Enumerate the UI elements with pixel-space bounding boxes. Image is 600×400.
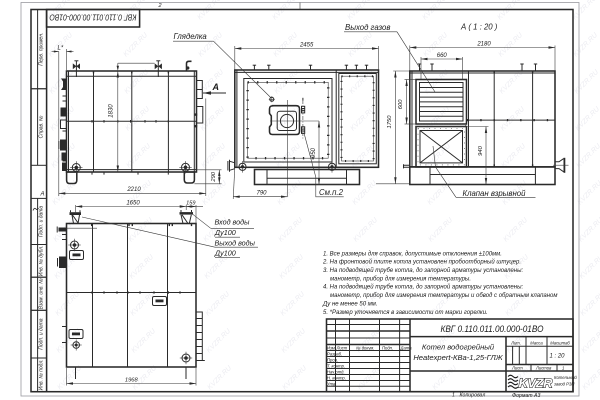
svg-text:КВГ 0.110.011.00.000-01ВО: КВГ 0.110.011.00.000-01ВО (441, 324, 544, 334)
svg-text:1650: 1650 (126, 201, 140, 207)
svg-text:290: 290 (211, 171, 217, 182)
svg-text:2210: 2210 (126, 187, 141, 193)
svg-text:Heatexpert-КВа-1,25-ГЛЖ: Heatexpert-КВа-1,25-ГЛЖ (413, 353, 503, 362)
svg-text:2455: 2455 (299, 42, 314, 48)
svg-text:Подп.: Подп. (382, 346, 393, 351)
svg-text:660: 660 (437, 53, 448, 59)
svg-text:А: А (212, 82, 220, 92)
svg-text:завод РЗП: завод РЗП (553, 382, 575, 387)
svg-text:2180: 2180 (476, 41, 491, 47)
svg-text:Ду100: Ду100 (214, 228, 236, 237)
svg-text:Гляделка: Гляделка (174, 32, 208, 41)
svg-text:Ду100: Ду100 (214, 249, 236, 258)
svg-text:790: 790 (256, 191, 267, 197)
svg-text:3. На подводящей трубе котла,: 3. На подводящей трубе котла, до запорно… (323, 267, 523, 274)
svg-text:L*: L* (58, 46, 64, 52)
svg-text:Изм.: Изм. (327, 346, 336, 351)
svg-text:1: 1 (452, 393, 455, 399)
svg-text:2. На фронтовой плите котла ус: 2. На фронтовой плите котла установлен п… (322, 259, 521, 266)
svg-text:Разраб.: Разраб. (327, 352, 342, 357)
svg-text:1 : 20: 1 : 20 (549, 354, 565, 360)
svg-text:Формат А3: Формат А3 (512, 393, 540, 399)
svg-text:Масса: Масса (530, 341, 543, 346)
svg-text:Выход газов: Выход газов (345, 23, 390, 32)
svg-text:№ докум.: № докум. (356, 346, 374, 351)
svg-text:А: А (40, 192, 45, 198)
svg-text:Лит.: Лит. (510, 341, 521, 346)
svg-text:Котельный: Котельный (554, 375, 577, 380)
svg-text:KVZR: KVZR (519, 377, 553, 391)
svg-text:1830: 1830 (109, 104, 115, 118)
svg-text:А ( 1 : 20 ): А ( 1 : 20 ) (460, 23, 498, 32)
svg-text:Подп. и дата: Подп. и дата (38, 206, 44, 238)
svg-text:940: 940 (478, 145, 484, 155)
svg-text:Масштаб: Масштаб (550, 341, 570, 346)
svg-text:1. Все размеры для справок, до: 1. Все размеры для справок, допустимые о… (323, 251, 502, 257)
svg-text:Ду не менее 50 мм.: Ду не менее 50 мм. (322, 301, 378, 307)
svg-text:Подп. и дата: Подп. и дата (38, 318, 44, 350)
svg-text:Вход воды: Вход воды (215, 218, 251, 227)
svg-text:См.п.2: См.п.2 (319, 188, 344, 197)
svg-text:4. На подводящей трубе котла,: 4. На подводящей трубе котла, до запорно… (323, 284, 523, 291)
svg-text:Клапан взрывной: Клапан взрывной (463, 189, 527, 198)
svg-text:Перв. примен.: Перв. примен. (38, 33, 44, 66)
svg-text:Т. контр.: Т. контр. (327, 364, 345, 369)
svg-text:1: 1 (562, 366, 564, 371)
svg-text:5. *Размер уточняется в зависи: 5. *Размер уточняется в зависимости от м… (323, 310, 488, 316)
svg-text:Справ. №: Справ. № (38, 115, 44, 138)
svg-text:Дата: Дата (400, 346, 413, 351)
svg-text:Утв.: Утв. (327, 382, 337, 387)
svg-text:1750: 1750 (387, 115, 393, 129)
svg-text:Пров.: Пров. (327, 358, 338, 363)
svg-text:Выход воды: Выход воды (215, 239, 256, 248)
svg-text:1968: 1968 (125, 377, 139, 383)
svg-text:Н. контр.: Н. контр. (327, 376, 346, 381)
svg-text:Лист: Лист (336, 346, 348, 351)
svg-text:манометр, прибор для измерения: манометр, прибор для измерения температу… (330, 276, 471, 282)
svg-text:Инв. № дубл.: Инв. № дубл. (38, 245, 44, 276)
svg-text:Нач.отд.: Нач.отд. (327, 370, 345, 375)
svg-text:2: 2 (158, 3, 162, 9)
svg-text:Лист: Лист (511, 366, 523, 371)
svg-text:600: 600 (398, 99, 404, 109)
svg-text:950: 950 (311, 147, 317, 158)
svg-text:Котел водогрейный: Котел водогрейный (422, 343, 495, 352)
svg-text:КВГ 0.110.011.00.000-01ВО: КВГ 0.110.011.00.000-01ВО (49, 13, 136, 23)
svg-text:Инв. № подл.: Инв. № подл. (38, 359, 44, 390)
svg-text:Копировал: Копировал (460, 393, 486, 399)
svg-text:Листов: Листов (535, 366, 552, 371)
svg-text:манометр, прибор для измерения: манометр, прибор для измерения температу… (330, 293, 557, 299)
svg-text:Взам. инв. №: Взам. инв. № (38, 278, 44, 310)
svg-text:159: 159 (186, 201, 195, 207)
